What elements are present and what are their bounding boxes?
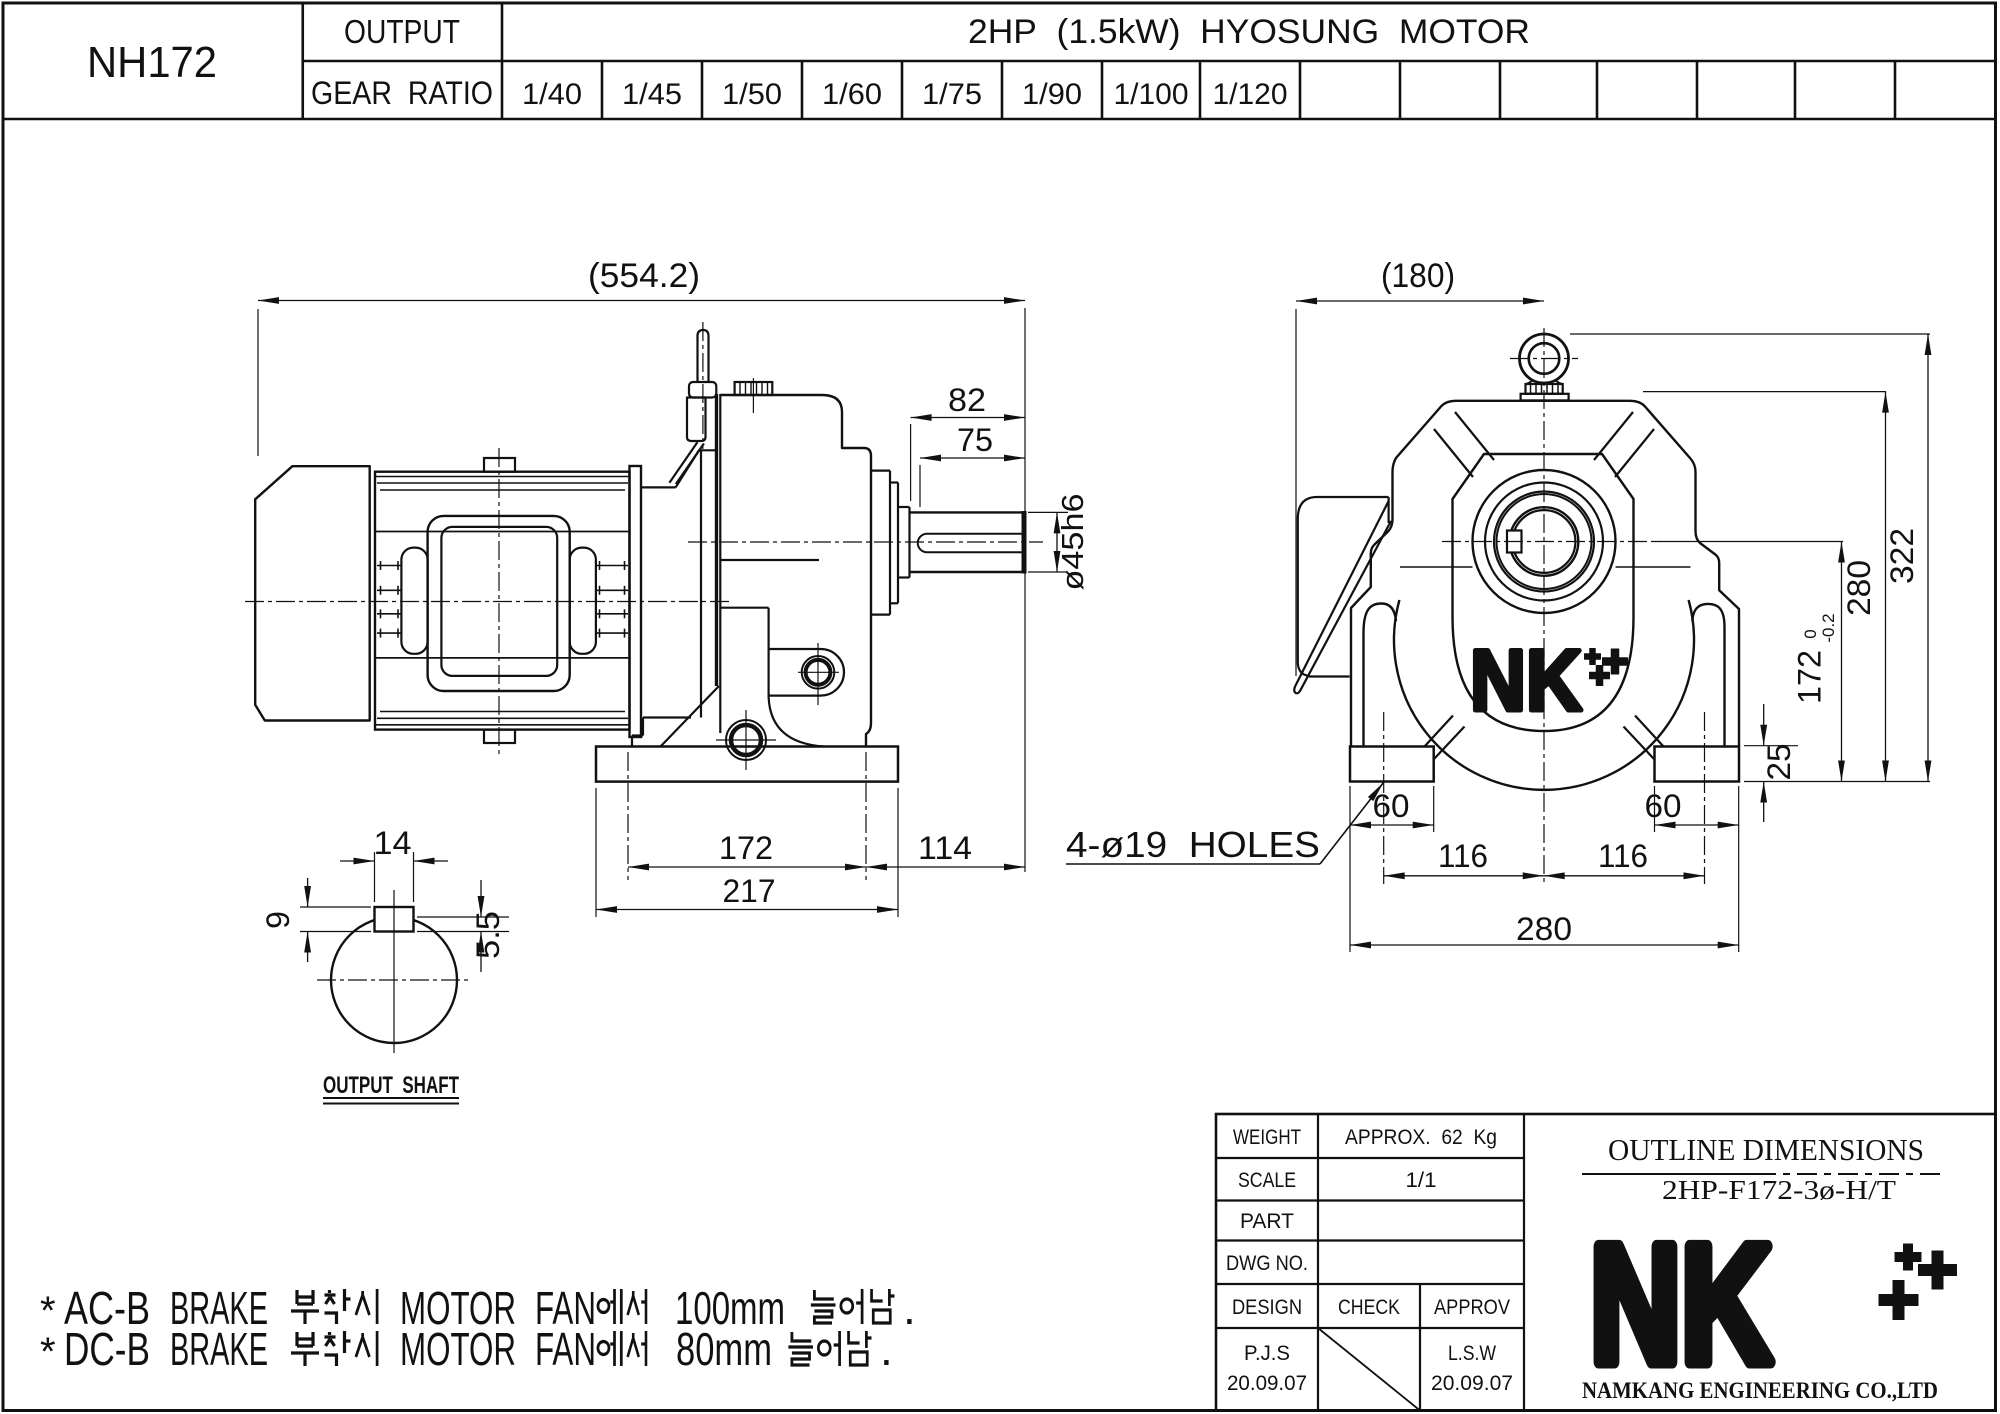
- svg-text:NAMKANG ENGINEERING CO.,LTD: NAMKANG ENGINEERING CO.,LTD: [1582, 1378, 1938, 1403]
- svg-text:1/75: 1/75: [922, 78, 982, 111]
- svg-text:172: 172: [1792, 650, 1828, 704]
- svg-text:FAN: FAN: [535, 1323, 596, 1375]
- svg-text:172: 172: [719, 830, 773, 866]
- svg-text:OUTPUT: OUTPUT: [344, 13, 460, 50]
- svg-text:APPROX. 62 Kg: APPROX. 62 Kg: [1345, 1126, 1497, 1149]
- svg-text:ø45h6: ø45h6: [1055, 494, 1090, 591]
- svg-text:25: 25: [1761, 744, 1797, 781]
- svg-text:DWG NO.: DWG NO.: [1226, 1252, 1308, 1275]
- svg-text:5.5: 5.5: [470, 911, 506, 959]
- svg-text:1/40: 1/40: [522, 78, 582, 111]
- svg-text:NK: NK: [1590, 1210, 1772, 1398]
- svg-text:(554.2): (554.2): [588, 257, 700, 295]
- svg-text:1/50: 1/50: [722, 78, 782, 111]
- svg-text:116: 116: [1438, 838, 1488, 874]
- svg-text:20.09.07: 20.09.07: [1431, 1372, 1513, 1395]
- svg-text:322: 322: [1884, 528, 1920, 584]
- svg-text:2HP-F172-3ø-H/T: 2HP-F172-3ø-H/T: [1662, 1175, 1897, 1205]
- svg-text:1/1: 1/1: [1406, 1169, 1437, 1192]
- svg-text:OUTLINE DIMENSIONS: OUTLINE DIMENSIONS: [1608, 1132, 1924, 1167]
- svg-text:WEIGHT: WEIGHT: [1233, 1126, 1301, 1149]
- svg-text:OUTPUT SHAFT: OUTPUT SHAFT: [323, 1072, 459, 1099]
- svg-text:(180): (180): [1381, 257, 1455, 295]
- svg-text:1/90: 1/90: [1022, 78, 1082, 111]
- svg-text:82: 82: [948, 382, 986, 418]
- svg-text:1/60: 1/60: [822, 78, 882, 111]
- svg-text:9: 9: [260, 911, 296, 929]
- svg-text:-0.2: -0.2: [1819, 613, 1838, 642]
- svg-text:60: 60: [1645, 788, 1682, 824]
- svg-text:280: 280: [1841, 560, 1877, 616]
- svg-text:114: 114: [918, 830, 972, 866]
- svg-text:75: 75: [957, 422, 993, 458]
- svg-text:CHECK: CHECK: [1338, 1296, 1400, 1319]
- svg-text:*: *: [40, 1330, 56, 1374]
- svg-text:P.J.S: P.J.S: [1244, 1342, 1290, 1365]
- svg-text:DC-B: DC-B: [64, 1323, 150, 1375]
- svg-text:.: .: [903, 1282, 916, 1334]
- svg-text:80mm: 80mm: [676, 1323, 772, 1375]
- svg-text:0: 0: [1801, 629, 1820, 638]
- svg-text:*: *: [40, 1289, 56, 1333]
- svg-text:L.S.W: L.S.W: [1448, 1342, 1496, 1365]
- svg-text:.: .: [880, 1323, 893, 1375]
- svg-text:NH172: NH172: [87, 38, 217, 87]
- svg-text:14: 14: [374, 825, 412, 861]
- svg-text:MOTOR: MOTOR: [400, 1323, 516, 1375]
- svg-text:SCALE: SCALE: [1238, 1169, 1296, 1192]
- svg-text:BRAKE: BRAKE: [170, 1323, 268, 1375]
- svg-text:1/45: 1/45: [622, 78, 682, 111]
- svg-text:20.09.07: 20.09.07: [1227, 1372, 1307, 1395]
- svg-text:280: 280: [1516, 911, 1572, 947]
- svg-text:4-ø19 HOLES: 4-ø19 HOLES: [1066, 824, 1320, 865]
- svg-text:60: 60: [1373, 788, 1410, 824]
- svg-text:116: 116: [1598, 838, 1648, 874]
- svg-text:APPROV: APPROV: [1434, 1296, 1510, 1319]
- svg-text:PART: PART: [1240, 1210, 1294, 1233]
- svg-text:2HP (1.5kW) HYOSUNG MOTOR: 2HP (1.5kW) HYOSUNG MOTOR: [968, 13, 1530, 51]
- svg-text:1/100: 1/100: [1114, 78, 1189, 111]
- svg-text:217: 217: [723, 873, 776, 909]
- svg-text:1/120: 1/120: [1213, 78, 1288, 111]
- svg-text:NK: NK: [1470, 633, 1582, 729]
- svg-text:GEAR RATIO: GEAR RATIO: [311, 75, 493, 111]
- svg-text:DESIGN: DESIGN: [1232, 1296, 1302, 1319]
